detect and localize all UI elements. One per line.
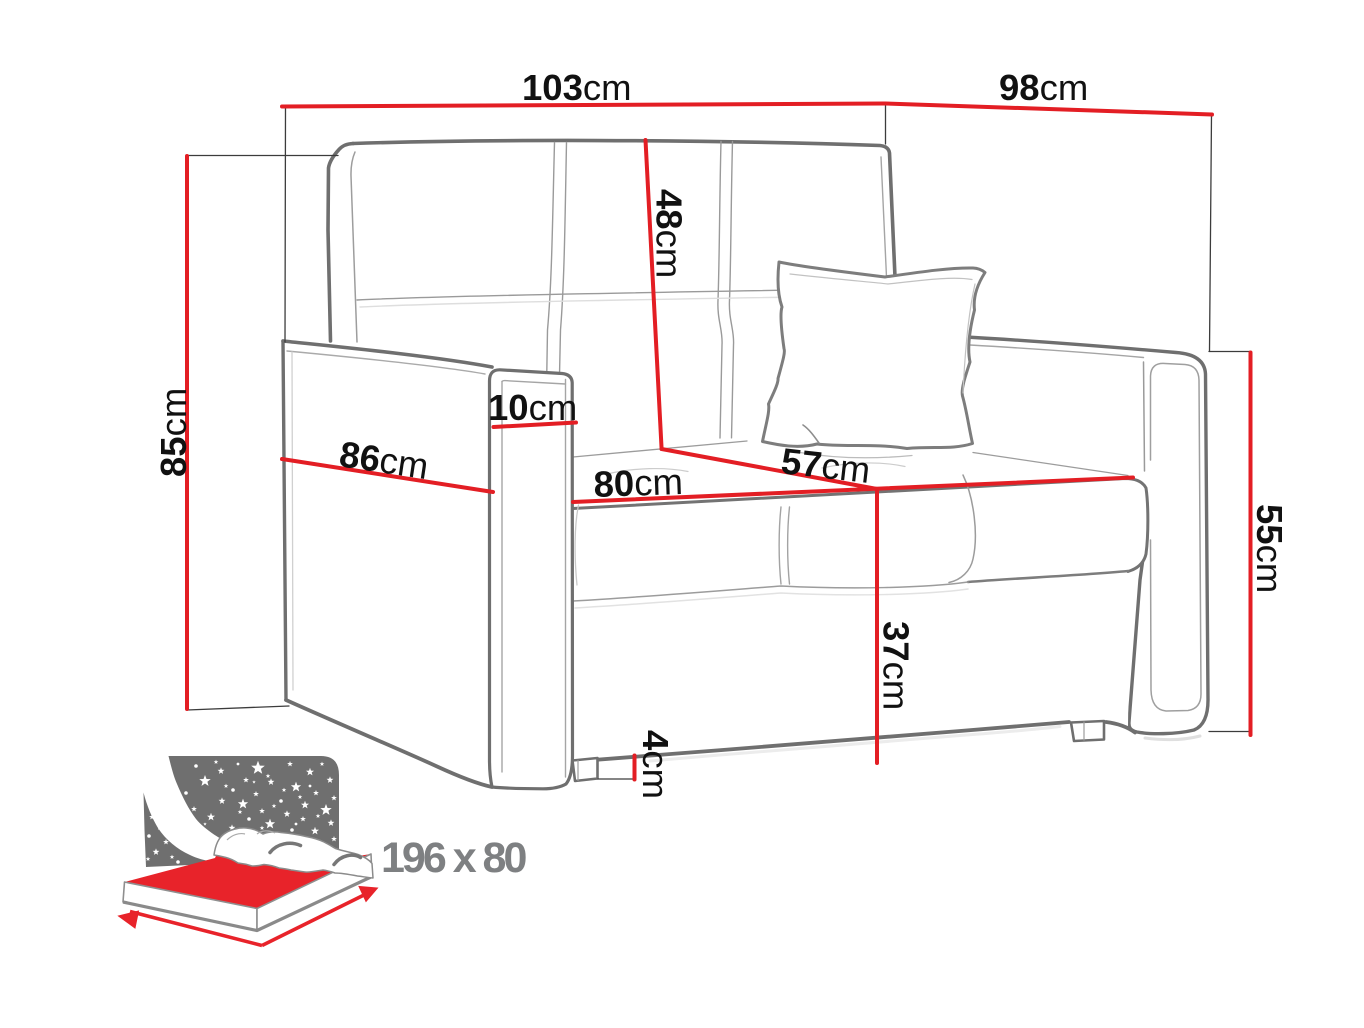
svg-text:196 x 80: 196 x 80 (381, 834, 526, 882)
svg-text:55cm: 55cm (1249, 504, 1290, 593)
svg-text:4cm: 4cm (635, 730, 676, 799)
svg-text:80cm: 80cm (593, 461, 684, 505)
svg-text:98cm: 98cm (999, 67, 1088, 108)
svg-text:10cm: 10cm (488, 387, 577, 428)
svg-text:37cm: 37cm (876, 621, 917, 710)
svg-text:103cm: 103cm (522, 67, 632, 108)
svg-text:85cm: 85cm (153, 388, 194, 477)
svg-text:48cm: 48cm (649, 189, 690, 278)
